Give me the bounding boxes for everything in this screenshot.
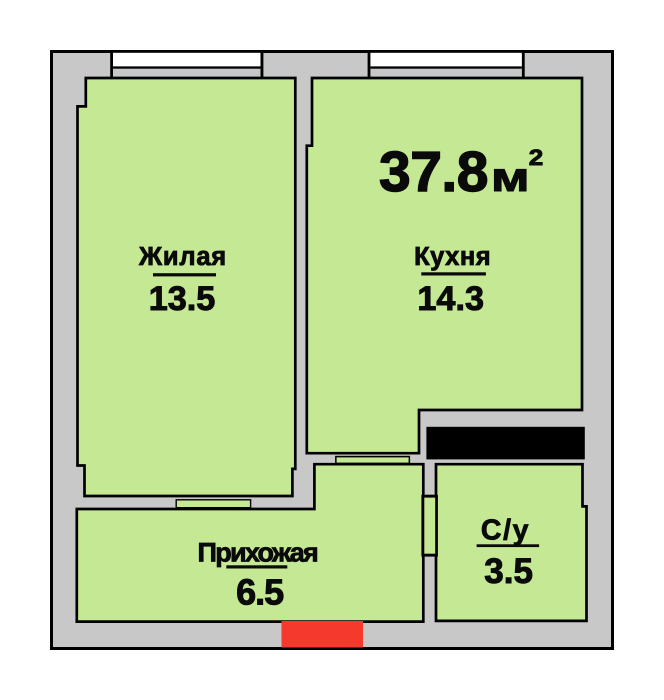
svg-text:С/у: С/у [481, 515, 530, 547]
svg-text:Жилая: Жилая [138, 243, 227, 271]
svg-text:Прихожая: Прихожая [197, 538, 317, 568]
svg-text:6.5: 6.5 [236, 571, 284, 612]
svg-text:2: 2 [529, 145, 544, 170]
svg-text:3.5: 3.5 [484, 552, 533, 591]
svg-text:14.3: 14.3 [417, 280, 484, 318]
svg-text:37.8: 37.8 [379, 140, 488, 204]
svg-text:Кухня: Кухня [414, 243, 491, 271]
svg-text:13.5: 13.5 [149, 280, 216, 318]
svg-text:м: м [491, 154, 530, 199]
